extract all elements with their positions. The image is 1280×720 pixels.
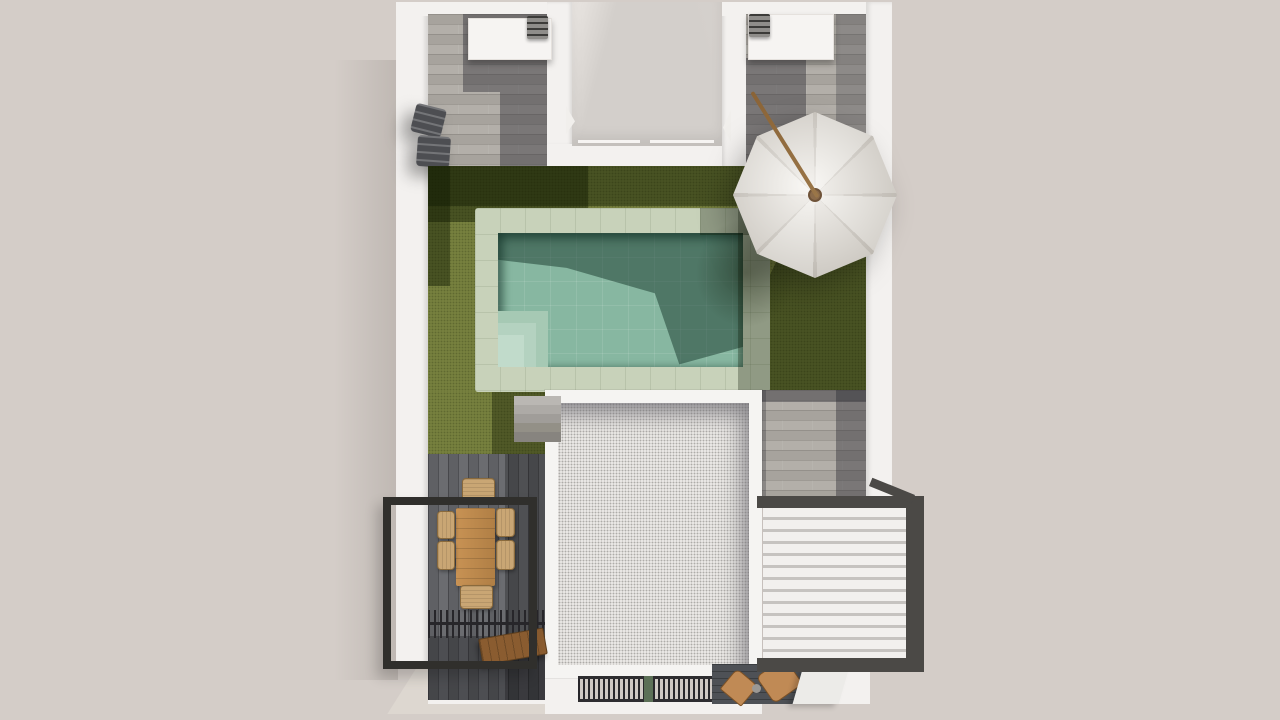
pergola-louvers [763,508,908,658]
render-canvas [0,0,1280,720]
grill-icon [527,16,548,39]
courtyard-railing [650,140,714,143]
pergola-frame-right [906,496,924,672]
courtyard-railing [578,140,640,143]
grill-icon [749,14,770,37]
lawn-shadow [428,166,450,286]
paving-shadow [836,390,866,500]
steel-pergola-frame [383,497,537,669]
side-table [752,684,761,693]
potted-plant [644,676,653,702]
staircase [514,396,561,442]
pergola-frame-bottom [757,658,908,672]
louvered-pergola [757,496,924,672]
pool-step [498,335,524,367]
gravel-roof [545,390,762,678]
terrace-left-shadow [500,92,547,168]
stair-step [514,432,561,442]
courtyard-void-floor [572,2,722,146]
sun-lounger [416,135,451,168]
courtyard-bottom-wall [547,144,746,168]
gravel-roof-surface [558,403,749,665]
